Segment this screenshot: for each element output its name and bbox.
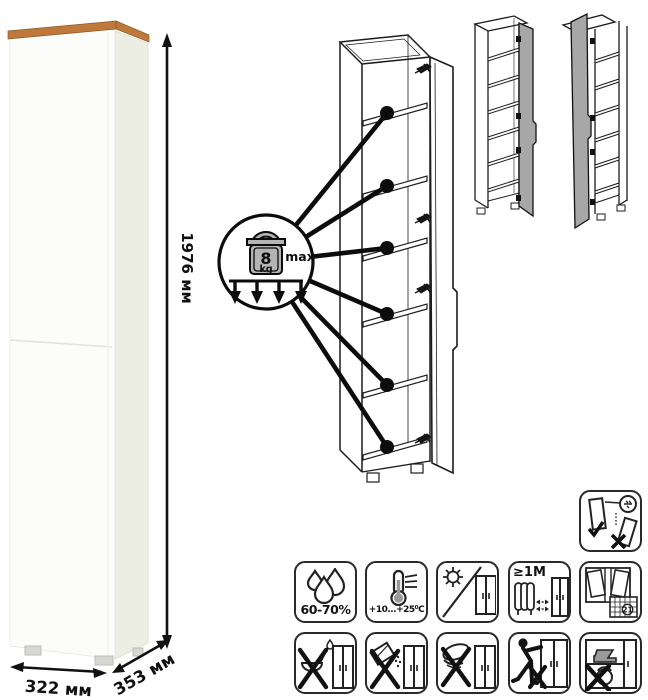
double-arrow-icon <box>536 600 549 612</box>
door-variant-left-hinge <box>557 3 648 238</box>
no-overload-icon <box>579 632 642 694</box>
calendar-day: 21 <box>622 606 632 615</box>
variant-door-left <box>571 14 591 228</box>
calendar-icon: 21 <box>610 597 637 617</box>
humidity-label: 60-70% <box>300 604 350 617</box>
ladle-icon <box>302 640 333 671</box>
shelves <box>363 103 427 460</box>
width-label: 322 мм <box>24 677 92 700</box>
cabinet-glyph <box>541 640 567 687</box>
no-dragging-icon <box>508 632 571 694</box>
load-unit: kg <box>259 264 272 275</box>
width-dimension: 322 мм <box>10 662 107 700</box>
cabinet-side-panel <box>115 31 148 659</box>
shelf-pointer-dots <box>380 106 394 454</box>
heat-distance-icon: ≥1М <box>508 561 571 623</box>
cabinet-glyph <box>476 576 496 614</box>
height-dimension: 1976 мм <box>162 33 196 649</box>
sun-icon <box>443 567 463 587</box>
ventilation-icon: 21 <box>579 561 642 623</box>
temperature-label: +10...+25⁰C <box>369 606 424 615</box>
temperature-icon: +10...+25⁰C <box>365 561 428 623</box>
humidity-icon: 60-70% <box>294 561 357 623</box>
radiator-icon <box>515 583 534 615</box>
load-limit-callout: 8 kg max <box>219 215 315 309</box>
foot-left <box>25 646 41 655</box>
cabinet-glyph <box>475 646 495 688</box>
cabinet-glyph <box>333 646 353 688</box>
height-label: 1976 мм <box>178 232 196 304</box>
anvil-icon <box>594 650 616 662</box>
hinges <box>415 64 431 443</box>
cabinet-exploded-view: 8 kg max <box>205 5 485 510</box>
load-max-label: max <box>285 249 315 264</box>
no-direct-sunlight-icon <box>436 561 499 623</box>
cabinet-photo: 1976 мм 322 мм 353 мм <box>0 0 200 700</box>
foot-right <box>95 656 113 665</box>
wall-anchor-icon <box>579 490 642 552</box>
cabinet-glyph <box>552 578 568 616</box>
cabinet-glyph <box>404 646 424 688</box>
carcass-outline <box>340 35 430 482</box>
variant-door-right <box>519 23 536 216</box>
open-door <box>430 57 457 473</box>
no-abrasives-icon <box>365 632 428 694</box>
door-variant-right-hinge <box>467 3 559 238</box>
no-liquids-icon <box>294 632 357 694</box>
no-wet-sponge-icon <box>436 632 499 694</box>
distance-label: ≥1М <box>513 565 546 580</box>
furniture-infographic: 1976 мм 322 мм 353 мм <box>0 0 648 700</box>
